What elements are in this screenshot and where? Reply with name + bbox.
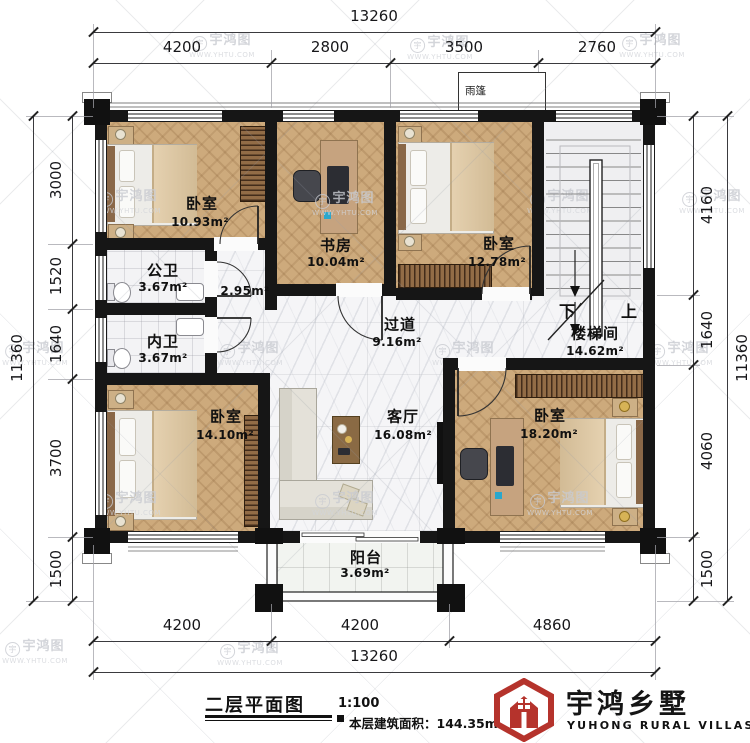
wall-stub (255, 528, 283, 544)
wall (443, 370, 455, 531)
stair-floor (544, 122, 643, 300)
floor-area-label: 本层建筑面积： (349, 716, 437, 731)
room-name-bed1: 卧室 (186, 193, 218, 214)
door-opening (204, 261, 218, 297)
door-opening (204, 317, 218, 353)
pillow (119, 150, 135, 182)
drawing-scale: 1:100 (338, 696, 379, 711)
extension-line (93, 24, 94, 108)
column (84, 99, 110, 125)
desk-accessory (495, 492, 502, 499)
dim-line-left-total (33, 116, 34, 601)
room-area-balcony: 3.69m² (340, 566, 389, 580)
dim-top-3: 3500 (445, 38, 483, 56)
dim-bottom-2: 4200 (341, 616, 379, 634)
room-name-stairwell: 楼梯间 (571, 323, 619, 344)
dim-line-bottom-segments (93, 641, 655, 642)
door-opening (458, 357, 506, 371)
canopy-label: 雨篷 (465, 83, 486, 98)
lamp (404, 236, 415, 247)
dim-left-2: 1520 (47, 257, 65, 295)
room-name-bed4: 卧室 (534, 405, 566, 426)
door-opening (214, 237, 258, 251)
brand-name: 宇鸿乡墅 (566, 682, 690, 721)
stairs-up-label: 上 (621, 298, 637, 322)
wall (384, 122, 396, 296)
headboard (107, 412, 115, 516)
dim-right-total: 11360 (733, 334, 750, 382)
window (128, 531, 238, 543)
wardrobe (515, 374, 645, 398)
dim-line-bottom-total (93, 672, 655, 673)
room-area-hallway: 2.95m² (220, 284, 269, 298)
pillow (119, 460, 136, 498)
pillow (119, 186, 135, 218)
blanket (450, 143, 494, 231)
dim-line-right-segments (693, 116, 694, 601)
dim-top-total: 13260 (350, 7, 398, 25)
blanket (152, 411, 197, 517)
balcony-door-opening (300, 531, 420, 543)
laptop (327, 166, 349, 204)
stairs-down-label: 下 (559, 298, 575, 322)
dim-line-right-total (727, 116, 728, 601)
sink (176, 318, 204, 336)
extension-line (26, 116, 93, 117)
dim-top-2: 2800 (311, 38, 349, 56)
room-area-bed3: 14.10m² (196, 428, 254, 442)
table-decor (338, 448, 350, 455)
dim-top-1: 4200 (163, 38, 201, 56)
wall (265, 122, 277, 310)
extension-line (657, 116, 734, 117)
window (283, 110, 334, 122)
lamp (115, 516, 126, 527)
room-name-living: 客厅 (387, 406, 419, 427)
dim-bottom-total: 13260 (350, 647, 398, 665)
lamp (115, 129, 126, 140)
dim-top-4: 2760 (578, 38, 616, 56)
wall-stub (437, 528, 465, 544)
window (128, 110, 222, 122)
column-notch (82, 553, 112, 564)
dim-right-2: 1640 (698, 311, 716, 349)
balcony-column (255, 584, 283, 612)
title-rule (205, 715, 332, 718)
dim-left-1: 3000 (47, 161, 65, 199)
door-opening (336, 283, 382, 297)
room-area-public-bath: 3.67m² (138, 280, 187, 294)
chair (460, 448, 488, 480)
dim-line-left-segments (72, 116, 73, 601)
table-decor (345, 436, 352, 443)
room-area-bed2: 12.78m² (468, 255, 526, 269)
room-area-private-bath: 3.67m² (138, 351, 187, 365)
extension-line (271, 50, 272, 108)
tv (437, 422, 443, 484)
brand-tagline: YUHONG RURAL VILLAS (567, 719, 750, 732)
toilet (113, 282, 131, 303)
dim-left-4: 3700 (47, 439, 65, 477)
floor-plan-sheet: 宇宇鸿图WWW.YHTU.COM 宇宇鸿图WWW.YHTU.COM 宇宇鸿图WW… (0, 0, 750, 743)
room-area-bed1: 10.93m² (171, 215, 229, 229)
rain-canopy: 雨篷 (458, 72, 546, 112)
lamp (115, 227, 126, 238)
lamp (404, 128, 415, 139)
lamp (619, 511, 630, 522)
drawing-title: 二层平面图 (205, 691, 305, 717)
column (640, 528, 666, 554)
extension-line (390, 50, 391, 108)
window (643, 145, 655, 268)
laptop (496, 446, 514, 486)
room-name-balcony: 阳台 (350, 547, 382, 568)
wall (95, 373, 270, 385)
dim-bottom-3: 4860 (533, 616, 571, 634)
balcony-column (437, 584, 465, 612)
desk-accessory (324, 212, 331, 219)
room-area-stairwell: 14.62m² (566, 344, 624, 358)
room-name-private-bath: 内卫 (147, 331, 179, 352)
lamp (619, 401, 630, 412)
room-name-public-bath: 公卫 (147, 260, 179, 281)
room-area-bed4: 18.20m² (520, 427, 578, 441)
title-rule (205, 720, 332, 721)
chair (293, 170, 321, 202)
area-bullet (337, 715, 344, 722)
brand-logo-icon (492, 678, 556, 742)
wall (95, 303, 205, 315)
wardrobe (240, 126, 267, 202)
pillow (616, 424, 632, 460)
dim-line-top-total (93, 32, 655, 33)
room-area-corridor: 9.16m² (372, 335, 421, 349)
room-name-bed3: 卧室 (210, 406, 242, 427)
pillow (410, 150, 427, 186)
column (84, 528, 110, 554)
lamp (115, 393, 126, 404)
table-decor (337, 424, 347, 434)
window (95, 318, 107, 362)
room-area-living: 16.08m² (374, 428, 432, 442)
window (95, 140, 107, 232)
dim-left-5: 1500 (47, 550, 65, 588)
extension-line (93, 545, 94, 680)
watermark: 宇宇鸿图WWW.YHTU.COM (2, 635, 68, 665)
wall (258, 385, 270, 531)
pillow (119, 418, 136, 456)
extension-line (655, 24, 656, 108)
toilet (113, 348, 131, 369)
room-area-study: 10.04m² (307, 255, 365, 269)
window (400, 110, 478, 122)
window (500, 531, 605, 543)
room-name-corridor: 过道 (384, 314, 416, 335)
window (95, 256, 107, 300)
extension-line (655, 545, 656, 680)
dim-bottom-1: 4200 (163, 616, 201, 634)
wall (532, 122, 544, 296)
column (640, 99, 666, 125)
extension-line (26, 601, 93, 602)
dim-right-4: 1500 (698, 550, 716, 588)
pillow (410, 188, 427, 224)
window (556, 110, 632, 122)
dim-line-top-segments (93, 63, 655, 64)
headboard (107, 146, 115, 222)
dim-right-1: 4160 (698, 186, 716, 224)
window (95, 412, 107, 515)
dim-left-total: 11360 (8, 334, 26, 382)
dim-left-3: 1640 (47, 325, 65, 363)
dim-right-3: 4060 (698, 432, 716, 470)
door-opening (482, 287, 530, 301)
room-name-study: 书房 (320, 235, 352, 256)
headboard (398, 144, 406, 230)
floor-area-text: 本层建筑面积：144.35m² (349, 713, 503, 732)
room-name-bed2: 卧室 (483, 233, 515, 254)
pillow (616, 462, 632, 498)
extension-line (657, 601, 734, 602)
